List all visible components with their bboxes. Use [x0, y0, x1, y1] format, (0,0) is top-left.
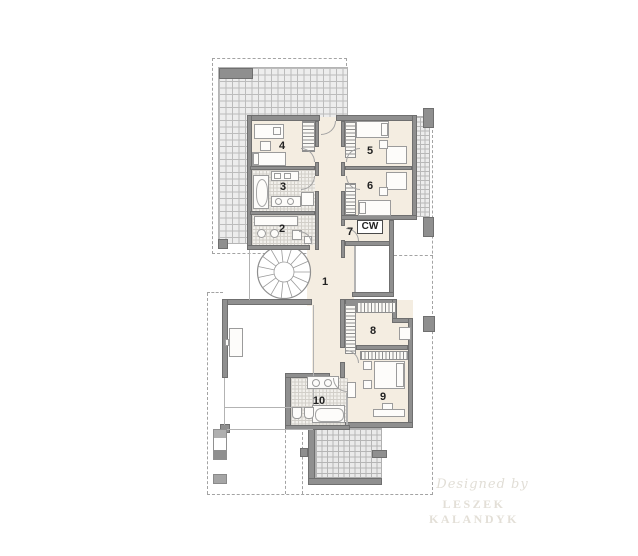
room8-stool	[399, 327, 411, 340]
wall-room3-room2	[250, 211, 315, 215]
room5-label: 5	[362, 145, 378, 157]
wall-room4-room3	[250, 166, 315, 170]
whiteroom-edge-line	[354, 246, 356, 292]
wall-void-top	[222, 299, 312, 305]
spiral-staircase	[255, 244, 313, 302]
dashed-segment-roof-right	[394, 255, 433, 256]
terrace-corner-pillar	[218, 239, 228, 249]
balcony-pillar-top	[423, 108, 434, 128]
room3-sink-b	[284, 173, 291, 179]
chimney-symbol-b	[213, 474, 227, 484]
watermark-author: LESZEK KALANDYK	[396, 497, 552, 527]
wall-room9-west-stub	[340, 362, 345, 378]
room4-desk-monitor	[273, 127, 281, 135]
void-edge-line-right	[313, 305, 314, 408]
room6-label: 6	[362, 180, 378, 192]
room7-label: 7	[344, 226, 356, 238]
room3-bathtub-basin	[256, 179, 268, 207]
room1-label: 1	[317, 276, 333, 288]
wall-whiteroom-bottom	[352, 292, 394, 297]
cw-closet-box: CW	[357, 220, 383, 234]
room3-label: 3	[275, 181, 291, 193]
stair-hall-edge-line	[249, 250, 250, 300]
room9-nightstand-a	[363, 361, 372, 370]
room8-shelving-west	[345, 304, 356, 354]
wall-room8-room9	[356, 345, 408, 350]
wall-corridor-west-b	[315, 162, 319, 176]
room9-bed-pillow	[396, 363, 404, 387]
wall-west-upper	[247, 115, 252, 250]
watermark-credit: Designed by	[425, 477, 540, 492]
room3-vanity-sink-a	[275, 198, 282, 205]
room10-sink-a	[312, 379, 320, 387]
room4-label: 4	[274, 140, 290, 152]
dashed-lower-line-b	[302, 432, 303, 494]
room2-label: 2	[274, 223, 290, 235]
wall-room10-west	[285, 373, 291, 430]
wall-room7-bottom	[345, 241, 393, 246]
void-edge-line-outer	[224, 429, 313, 430]
room9-shelf	[347, 382, 356, 398]
lower-terrace-stub-right	[372, 450, 387, 458]
room6-bed-pillow	[359, 202, 366, 214]
dashed-lower-line-a	[285, 430, 286, 494]
room9-dresser	[360, 351, 408, 360]
wall-room5-room6	[345, 166, 412, 170]
room4-chair	[260, 141, 271, 151]
room5-chair	[379, 140, 388, 149]
wall-room9-bottom	[345, 422, 413, 428]
room5-bed-pillow	[381, 123, 388, 136]
void-fireplace	[229, 328, 243, 357]
floor-plan-canvas: CW 1 2 3 4 5 6 7 8 9 10 Designed by	[0, 0, 638, 556]
chimney-symbol-a	[213, 429, 227, 460]
room3-vanity-sink-b	[287, 198, 294, 205]
cw-closet-label: CW	[362, 221, 379, 232]
terrace-parapet-wall	[219, 68, 253, 79]
void-fireplace-tab	[225, 339, 229, 346]
dashed-outline-bottom	[207, 494, 433, 495]
wall-room7-east	[389, 220, 394, 297]
room8-label: 8	[365, 325, 381, 337]
void-edge-line-left	[224, 378, 225, 425]
room5-desk	[386, 146, 407, 164]
room6-chair	[379, 187, 388, 196]
room8-shelving-north	[356, 302, 396, 313]
balcony-pillar-bottom	[423, 217, 434, 237]
room2-washer-a	[257, 229, 266, 238]
wall-room2-bottom	[247, 245, 310, 250]
lower-terrace-wall-bottom	[308, 478, 382, 485]
room9-label: 9	[375, 391, 391, 403]
room10-toilet	[292, 407, 302, 419]
room3-shower	[301, 192, 314, 206]
chimney-a-flue	[214, 450, 226, 459]
room3-sink-a	[274, 173, 281, 179]
room6-desk	[386, 172, 407, 190]
dashed-outline-right	[432, 130, 433, 495]
lower-terrace-wall-left	[308, 428, 315, 485]
wall-corridor-west-a	[315, 121, 319, 147]
wall-east-upper	[412, 115, 417, 220]
room9-desk	[373, 409, 405, 417]
dashed-outline-left	[207, 293, 208, 494]
exterior-pillar-east	[423, 316, 435, 332]
room10-bathtub-basin	[315, 408, 344, 422]
room9-nightstand-b	[363, 380, 372, 389]
room10-sink-b	[324, 379, 332, 387]
dashed-segment-left	[207, 292, 223, 293]
room4-bed-pillow	[253, 153, 259, 165]
wall-corridor-west-c	[315, 191, 319, 250]
room10-label: 10	[308, 395, 330, 407]
chimney-a-cap	[214, 430, 226, 438]
lower-terrace-stub-left	[300, 448, 308, 457]
room10-bidet	[304, 407, 314, 419]
